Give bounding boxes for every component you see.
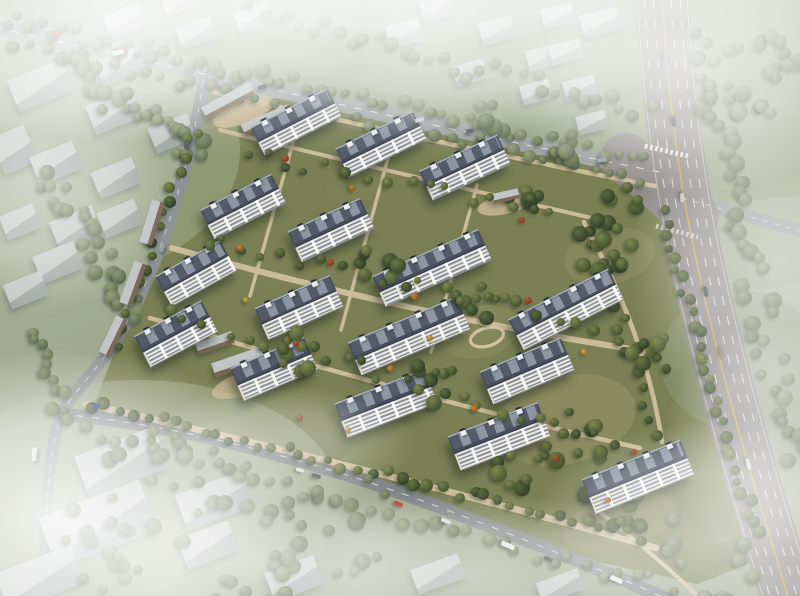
tree <box>309 341 320 352</box>
tree <box>364 176 372 184</box>
tree <box>78 573 88 583</box>
tree <box>218 235 225 242</box>
tree <box>567 518 576 527</box>
tree <box>400 95 411 106</box>
tree <box>261 515 273 527</box>
tree <box>576 258 591 273</box>
tree <box>497 409 509 421</box>
tree <box>152 114 164 126</box>
tree <box>606 169 614 177</box>
tree <box>277 343 289 355</box>
tree <box>98 435 108 445</box>
tree <box>177 448 193 464</box>
tree <box>145 414 153 422</box>
tree <box>692 28 702 38</box>
tree <box>111 447 127 463</box>
tree <box>594 445 608 459</box>
tree <box>373 552 383 562</box>
tree <box>765 29 779 43</box>
tree <box>696 326 707 337</box>
tree <box>240 586 251 596</box>
tree <box>508 202 518 212</box>
aerial-masterplan-render: Aerial architectural rendering of a resi… <box>0 0 800 596</box>
tree <box>652 430 663 441</box>
tree <box>548 131 559 142</box>
tree <box>570 317 581 328</box>
tree <box>112 269 126 283</box>
tree <box>534 556 543 565</box>
tree <box>340 167 351 178</box>
tree <box>488 100 498 110</box>
tree <box>690 50 706 66</box>
tree <box>108 493 118 503</box>
tree <box>349 512 366 529</box>
autumn-accent-tree <box>427 335 433 341</box>
tree <box>45 181 55 191</box>
tree <box>120 573 131 584</box>
tree <box>176 535 191 550</box>
autumn-accent-tree <box>243 297 249 303</box>
tree <box>705 91 718 104</box>
tree <box>176 167 187 178</box>
tree <box>427 180 435 188</box>
tree <box>732 553 746 567</box>
tree <box>765 107 776 118</box>
tree <box>745 494 758 507</box>
tree <box>122 87 134 99</box>
tree <box>677 558 688 569</box>
tree <box>194 508 203 517</box>
tree <box>474 65 485 76</box>
autumn-accent-tree <box>553 455 560 462</box>
tree <box>455 493 465 503</box>
tree <box>242 461 252 471</box>
tree <box>100 585 109 594</box>
tree <box>317 254 327 264</box>
tree <box>129 313 141 325</box>
autumn-accent-tree <box>349 185 355 191</box>
autumn-accent-tree <box>282 155 289 162</box>
autumn-accent-tree <box>631 449 637 455</box>
tree <box>438 481 449 492</box>
tree <box>193 129 203 139</box>
tree <box>622 182 633 193</box>
tree <box>241 499 255 513</box>
tree <box>244 1 253 10</box>
tree <box>151 452 164 465</box>
autumn-accent-tree <box>387 365 394 372</box>
tree <box>381 490 390 499</box>
tree <box>3 20 13 30</box>
car <box>680 193 684 202</box>
tree <box>61 204 74 217</box>
tree <box>49 375 59 385</box>
tree <box>196 149 208 161</box>
tree <box>85 251 98 264</box>
tree <box>61 413 74 426</box>
tree <box>583 560 592 569</box>
tree <box>526 194 535 203</box>
tree <box>530 205 539 214</box>
tree <box>257 253 264 260</box>
tree <box>121 309 129 317</box>
tree <box>725 82 733 90</box>
tree <box>282 496 296 510</box>
tree <box>377 32 386 41</box>
tree <box>746 569 761 584</box>
tree <box>635 356 650 371</box>
tree <box>590 429 597 436</box>
tree <box>345 498 359 512</box>
tree <box>461 392 470 401</box>
autumn-accent-tree <box>237 245 243 251</box>
tree <box>507 143 519 155</box>
roof-bulkhead <box>459 427 467 436</box>
tree <box>503 65 512 74</box>
tree <box>590 213 604 227</box>
tree <box>720 431 732 443</box>
tree <box>614 337 624 347</box>
autumn-accent-tree <box>525 297 532 304</box>
tree <box>338 261 347 270</box>
tree <box>281 163 290 172</box>
tree <box>205 240 215 250</box>
tree <box>486 193 494 201</box>
tree <box>737 290 752 305</box>
tree <box>539 155 548 164</box>
tree <box>184 75 196 87</box>
tree <box>103 37 113 47</box>
tree <box>523 150 536 163</box>
tree <box>696 353 708 365</box>
car <box>664 55 668 65</box>
tree <box>535 510 544 519</box>
tree <box>166 304 177 315</box>
tree <box>260 10 273 23</box>
tree <box>193 476 205 488</box>
tree <box>30 335 39 344</box>
tree <box>147 435 156 444</box>
tree <box>291 536 307 552</box>
tree <box>43 349 53 359</box>
tree <box>367 506 377 516</box>
tree <box>698 365 709 376</box>
tree <box>353 466 363 476</box>
tree <box>385 37 399 51</box>
tree <box>516 129 527 140</box>
tree <box>114 552 123 561</box>
autumn-accent-tree <box>297 415 303 421</box>
tree <box>384 508 396 520</box>
tree <box>713 120 724 131</box>
tree <box>768 306 779 317</box>
tree <box>476 100 487 111</box>
tree <box>662 544 675 557</box>
autumn-accent-tree <box>345 427 351 433</box>
tree <box>397 518 410 531</box>
tree <box>636 536 647 547</box>
autumn-accent-tree <box>327 259 334 266</box>
tree <box>207 79 218 90</box>
tree <box>661 205 670 214</box>
autumn-accent-tree <box>411 293 418 300</box>
tree <box>536 413 546 423</box>
tree <box>501 293 510 302</box>
tree <box>612 324 623 335</box>
tree <box>616 516 626 526</box>
tree <box>567 129 578 140</box>
tree <box>233 470 246 483</box>
tree <box>61 535 71 545</box>
tree <box>645 570 653 578</box>
tree <box>697 590 712 596</box>
tree <box>115 343 123 351</box>
roof-bulkhead <box>487 416 495 425</box>
tree <box>223 463 234 474</box>
tree <box>661 230 672 241</box>
tree <box>46 402 60 416</box>
tree <box>511 295 522 306</box>
tree <box>164 182 175 193</box>
tree <box>116 407 125 416</box>
tree <box>493 495 502 504</box>
tree <box>420 479 433 492</box>
tree <box>128 71 138 81</box>
tree <box>126 435 139 448</box>
tree <box>311 485 323 497</box>
tree <box>299 492 309 502</box>
tree <box>627 110 639 122</box>
tree <box>731 224 747 240</box>
tree <box>636 521 647 532</box>
tree <box>411 359 424 372</box>
tree <box>728 207 744 223</box>
tree <box>324 525 335 536</box>
tree <box>428 129 441 142</box>
tree <box>144 49 159 64</box>
tree <box>69 19 83 33</box>
tree <box>490 465 507 482</box>
tree <box>590 94 602 106</box>
tree <box>59 385 72 398</box>
tree <box>88 265 103 280</box>
tree <box>441 182 448 189</box>
tree <box>725 170 736 181</box>
tree <box>555 510 566 521</box>
tree <box>390 258 405 273</box>
tree <box>517 416 526 425</box>
tree <box>731 103 748 120</box>
tree <box>665 245 673 253</box>
tree <box>415 519 429 533</box>
tree <box>648 100 659 111</box>
tree <box>65 502 81 518</box>
roof-bulkhead <box>374 383 382 392</box>
car <box>672 117 676 127</box>
autumn-accent-tree <box>519 217 525 223</box>
tree <box>331 494 342 505</box>
tree <box>227 333 235 341</box>
tree <box>278 586 292 596</box>
tree <box>285 510 295 520</box>
tree <box>274 78 285 89</box>
tree <box>88 223 102 237</box>
tree <box>38 339 48 349</box>
tree <box>79 39 88 48</box>
tree <box>448 133 457 142</box>
tree <box>432 368 440 376</box>
tree <box>630 152 639 161</box>
tree <box>404 375 412 383</box>
tree <box>777 390 793 406</box>
tree <box>254 443 263 452</box>
tree <box>484 533 497 546</box>
tree <box>607 89 621 103</box>
tree <box>574 448 584 458</box>
tree <box>634 569 645 580</box>
tree <box>26 40 35 49</box>
roof-bulkhead <box>515 406 523 415</box>
tree <box>164 196 176 208</box>
tree <box>636 178 646 188</box>
tree <box>531 310 542 321</box>
autumn-accent-tree <box>293 341 299 347</box>
tree <box>685 294 695 304</box>
tree <box>182 421 192 431</box>
tree <box>562 551 573 562</box>
tree <box>782 58 795 71</box>
tree <box>143 36 154 47</box>
tree <box>638 401 647 410</box>
autumn-accent-tree <box>471 405 478 412</box>
roof-bulkhead <box>346 394 354 403</box>
tree <box>284 9 296 21</box>
autumn-accent-tree <box>605 497 611 503</box>
tree <box>730 465 740 475</box>
tree <box>702 38 712 48</box>
tree <box>414 99 425 110</box>
tree <box>720 417 728 425</box>
tree <box>447 115 460 128</box>
tree <box>754 40 766 52</box>
tree <box>460 72 472 84</box>
tree <box>451 67 461 77</box>
tree <box>307 456 316 465</box>
tree <box>521 69 529 77</box>
tree <box>407 479 419 491</box>
tree <box>667 512 681 526</box>
tree <box>217 495 233 511</box>
tree <box>166 422 175 431</box>
tree <box>690 307 699 316</box>
tree <box>80 525 95 540</box>
tree <box>281 550 296 565</box>
tree <box>160 412 170 422</box>
tree <box>589 325 600 336</box>
tree <box>479 311 493 325</box>
tree <box>345 353 354 362</box>
tree <box>382 177 393 188</box>
tree <box>759 335 769 345</box>
tree <box>7 41 20 54</box>
tree <box>300 360 316 376</box>
tree <box>540 441 551 452</box>
tree <box>745 330 758 343</box>
tree <box>276 248 286 258</box>
tree <box>334 26 347 39</box>
tree <box>456 296 466 306</box>
tree <box>297 520 308 531</box>
tree <box>289 325 305 341</box>
tree <box>40 165 55 180</box>
tree <box>491 59 501 69</box>
autumn-accent-tree <box>581 349 587 355</box>
tree <box>107 248 118 259</box>
tree <box>408 51 420 63</box>
tree <box>271 550 281 560</box>
tree <box>665 220 674 229</box>
tree <box>351 566 361 576</box>
tree <box>295 22 304 31</box>
tree <box>662 364 672 374</box>
tree <box>558 144 573 159</box>
tree <box>670 587 679 596</box>
tree <box>550 418 559 427</box>
tree <box>621 314 630 323</box>
tree <box>506 451 516 461</box>
tree <box>215 68 226 79</box>
tree <box>640 383 649 392</box>
tree <box>709 55 720 66</box>
tree <box>557 318 565 326</box>
tree <box>723 43 735 55</box>
tree <box>447 366 456 375</box>
tree <box>534 455 543 464</box>
